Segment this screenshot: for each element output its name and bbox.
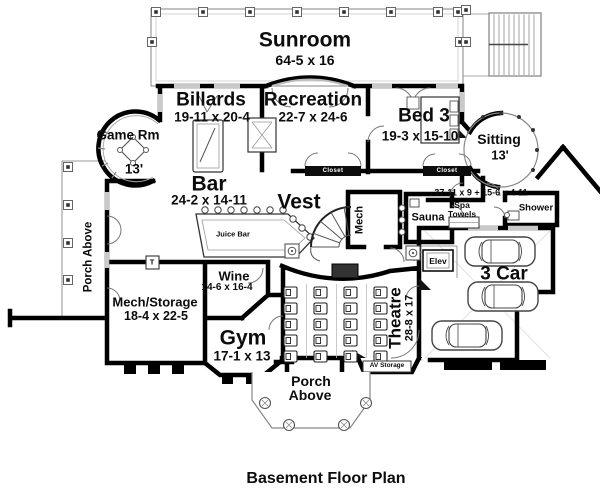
room-dim-bed3: 19-3 x 15-10 (382, 129, 459, 143)
room-dim-theatre: 28-8 x 17 (405, 295, 416, 341)
room-label-sunroom: Sunroom (259, 30, 351, 51)
room-dim-recreation: 22-7 x 24-6 (278, 110, 347, 124)
label-elevator: Elev (429, 257, 447, 266)
room-dim-sitting: 13' (491, 149, 509, 162)
room-label-mech: Mech (355, 206, 366, 234)
label-av-storage: AV Storage (370, 363, 405, 370)
label-towels: Towels (448, 210, 476, 219)
room-label-shower: Shower (519, 203, 553, 213)
room-label-mech-storage: Mech/Storage (112, 296, 197, 309)
label-porch-above-left: Porch Above (83, 222, 95, 293)
closet-bar-left: Closet (305, 166, 361, 176)
fireplace-icon (248, 118, 276, 152)
room-label-wine: Wine (219, 270, 250, 283)
room-dim-wine: 14-6 x 16-4 (201, 283, 252, 293)
room-label-theatre: Theatre (387, 287, 404, 348)
label-porch-bottom-2: Above (289, 388, 332, 402)
room-dim-mech-storage: 18-4 x 22-5 (124, 310, 188, 323)
label-porch-bottom-1: Porch (291, 374, 331, 388)
thermostat-mark: T (150, 258, 155, 266)
room-label-game-room: Game Rm (96, 128, 159, 142)
label-juice-bar: Juice Bar (216, 230, 250, 238)
room-label-garage: 3 Car (480, 265, 528, 284)
room-dim-bar: 24-2 x 14-11 (171, 193, 247, 207)
room-label-sauna: Sauna (411, 213, 444, 224)
room-label-sitting: Sitting (477, 132, 521, 146)
room-label-recreation: Recreation (264, 91, 362, 110)
room-label-billards: Billards (176, 91, 246, 110)
plan-caption: Basement Floor Plan (246, 471, 405, 487)
hall-dim: 37-11 x 9 + 15-6 x 4-11 (434, 189, 527, 198)
room-dim-sunroom: 64-5 x 16 (275, 53, 334, 67)
room-dim-billards: 19-11 x 20-4 (174, 110, 250, 124)
exterior-stair-icon (462, 6, 542, 77)
spiral-stair-icon (311, 207, 351, 261)
room-dim-gym: 17-1 x 13 (213, 349, 270, 363)
basement-floor-plan: Sunroom 64-5 x 16 Billards 19-11 x 20-4 … (0, 0, 600, 490)
pool-table-icon (193, 120, 223, 172)
room-dim-game-room: 13' (125, 162, 143, 176)
room-label-bed3: Bed 3 (398, 107, 450, 126)
closet-bar-right: Closet (423, 166, 471, 176)
room-label-gym: Gym (220, 328, 267, 349)
room-label-vest: Vest (277, 192, 320, 213)
